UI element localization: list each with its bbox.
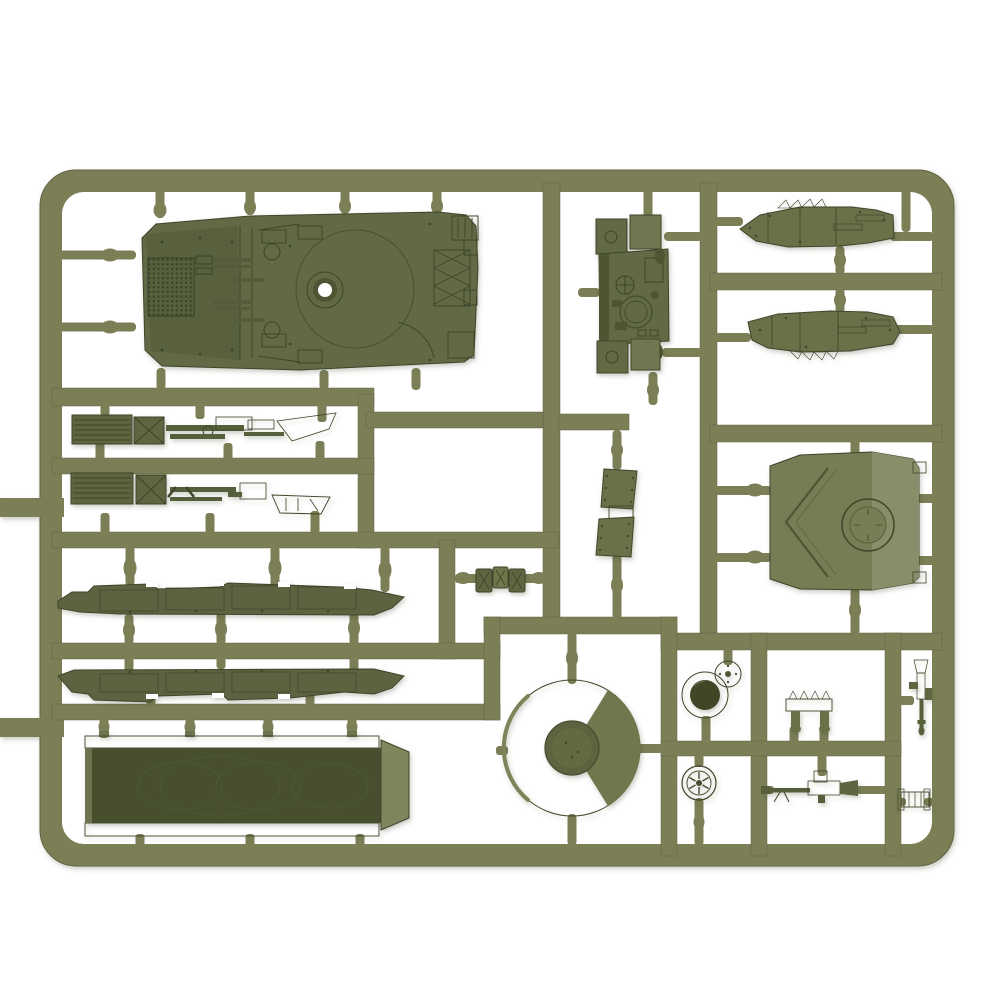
rail-fender-mid xyxy=(710,273,942,290)
rail-v1-elbow xyxy=(484,617,677,634)
part-side-skirt-upper: Side skirt / track piece (upper) xyxy=(58,581,404,615)
rail-h4 xyxy=(52,643,500,659)
gun-sight xyxy=(909,682,918,689)
rail-v0b xyxy=(439,540,455,659)
sprue-stub-left-1 xyxy=(0,498,64,517)
rail-hb1 xyxy=(661,741,901,756)
rail-paddle-stub xyxy=(559,414,629,430)
rail-h3 xyxy=(52,532,559,548)
part-hull-deck: Tank hull upper deck with engine grille … xyxy=(142,212,478,370)
part-fighting-compartment: Fighting compartment interior assembly xyxy=(596,215,669,373)
rail-h2 xyxy=(52,458,374,474)
hull-center-hole xyxy=(318,283,332,297)
rail-v2 xyxy=(700,183,717,645)
gun-magazine xyxy=(925,688,932,700)
bin-left-cap xyxy=(85,748,92,823)
rail-h5 xyxy=(52,704,500,720)
rail-h1b xyxy=(366,412,543,428)
part-turret-roof: Turret top plate with round hatch xyxy=(770,452,926,590)
bin-end-flap xyxy=(381,740,409,830)
part-hatch-plates: Three small hatch plates xyxy=(476,567,525,592)
part-road-wheel: Spoked road wheel xyxy=(682,766,716,800)
rail-turret-top xyxy=(710,425,942,442)
sprue-stub-left-2 xyxy=(0,718,64,737)
part-disc-cap: Small disc cap xyxy=(715,661,741,687)
rail-v3 xyxy=(484,617,500,720)
photo-stage: Sprue runner frame Sprue gate peg xyxy=(0,0,1000,1000)
sprue-photo: Sprue runner frame Sprue gate peg xyxy=(0,0,1000,1000)
bin-interior xyxy=(91,748,381,823)
rail-v1 xyxy=(543,183,560,625)
rail-v2b xyxy=(661,617,677,856)
engine-grille xyxy=(148,258,194,316)
